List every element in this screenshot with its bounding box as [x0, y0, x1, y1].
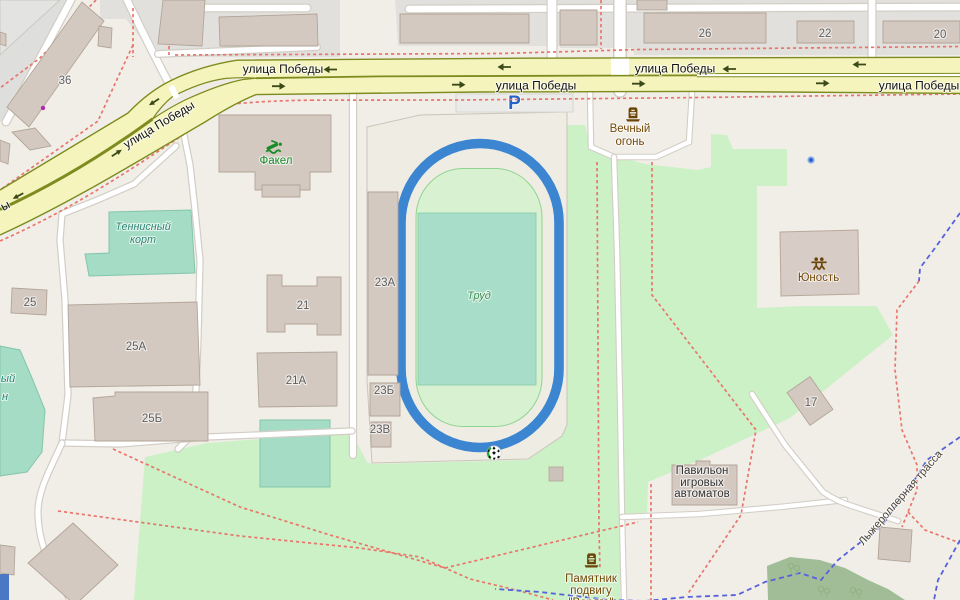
svg-text:21А: 21А	[286, 375, 307, 387]
svg-text:автоматов: автоматов	[674, 488, 729, 500]
svg-text:25: 25	[24, 297, 37, 309]
svg-text:23А: 23А	[375, 277, 396, 289]
svg-text:Теннисный: Теннисный	[115, 221, 170, 233]
svg-text:Факел: Факел	[259, 155, 292, 167]
svg-text:улица Победы: улица Победы	[635, 62, 715, 76]
svg-text:Юность: Юность	[798, 272, 839, 284]
svg-text:25Б: 25Б	[142, 413, 162, 425]
svg-text:20: 20	[934, 29, 947, 41]
svg-text:улица Победы: улица Победы	[879, 79, 959, 93]
svg-text:огонь: огонь	[615, 136, 644, 148]
svg-text:ый: ый	[1, 373, 15, 385]
svg-text:улица Победы: улица Победы	[496, 79, 576, 93]
svg-text:23В: 23В	[370, 424, 391, 436]
svg-text:23Б: 23Б	[374, 385, 394, 397]
svg-text:корт: корт	[130, 234, 156, 246]
svg-text:Павильон: Павильон	[676, 465, 729, 477]
svg-text:P: P	[508, 93, 521, 114]
svg-text:н: н	[2, 391, 8, 403]
svg-text:21: 21	[297, 300, 310, 312]
svg-text:17: 17	[805, 397, 818, 409]
svg-text:25А: 25А	[126, 341, 147, 353]
svg-text:22: 22	[819, 28, 832, 40]
svg-text:Труд: Труд	[467, 290, 491, 302]
svg-text:Вечный: Вечный	[610, 123, 651, 135]
svg-text:36: 36	[59, 75, 72, 87]
svg-text:подвигу: подвигу	[570, 585, 612, 597]
svg-text:26: 26	[699, 28, 712, 40]
svg-text:Памятник: Памятник	[565, 573, 618, 585]
svg-text:улица Победы: улица Победы	[243, 62, 323, 76]
